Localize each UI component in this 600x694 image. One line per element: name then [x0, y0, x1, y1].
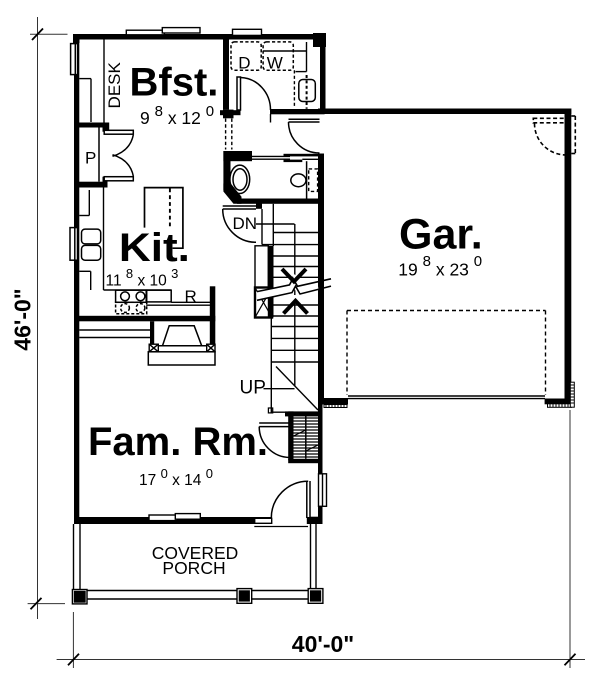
svg-text:46'-0": 46'-0" — [10, 288, 36, 350]
svg-text:Bfst.: Bfst. — [130, 61, 219, 105]
svg-text:DN: DN — [233, 214, 258, 233]
svg-text:W: W — [267, 54, 283, 73]
svg-text:Kit.: Kit. — [119, 226, 190, 270]
svg-text:D: D — [238, 54, 250, 73]
svg-text:UP: UP — [240, 378, 266, 399]
svg-text:Fam. Rm.: Fam. Rm. — [88, 420, 268, 464]
svg-text:DESK: DESK — [105, 61, 124, 108]
svg-text:40'-0": 40'-0" — [292, 631, 354, 657]
svg-text:PORCH: PORCH — [162, 558, 225, 578]
svg-text:Gar.: Gar. — [399, 211, 483, 259]
svg-text:R: R — [185, 287, 197, 306]
svg-text:P: P — [85, 148, 96, 167]
